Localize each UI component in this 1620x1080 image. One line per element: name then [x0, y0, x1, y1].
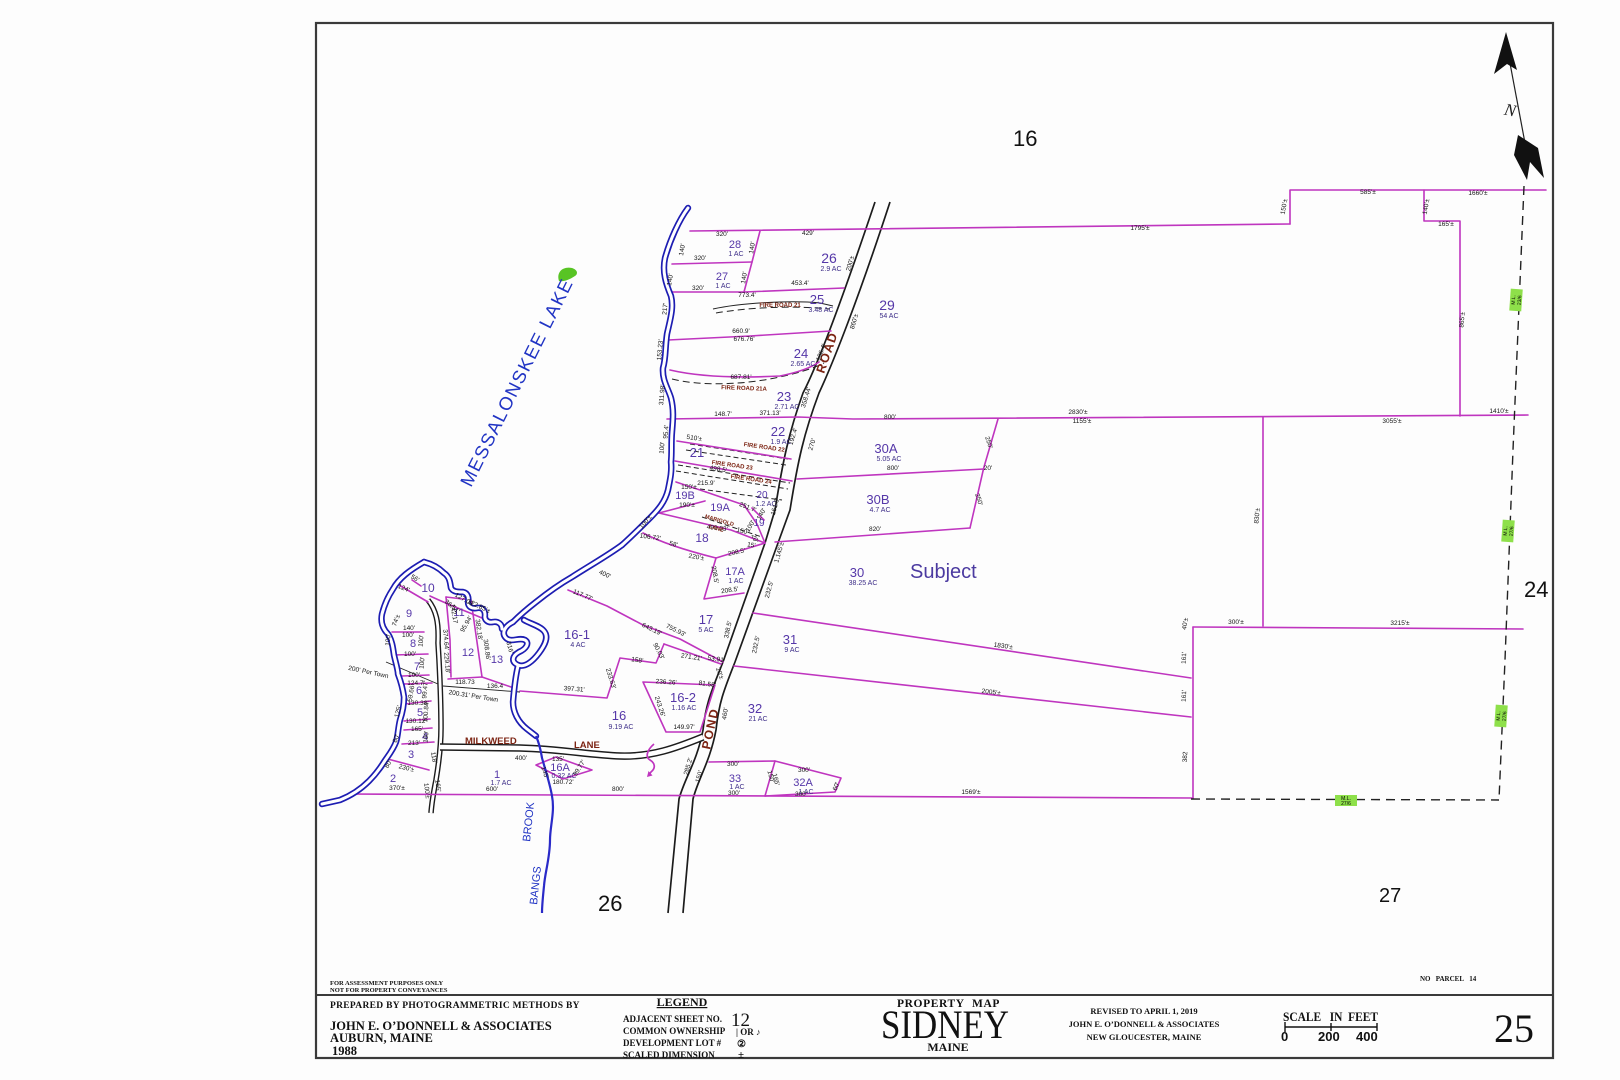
svg-text:320': 320'	[716, 231, 728, 238]
svg-text:23/6: 23/6	[1517, 295, 1524, 305]
svg-text:300': 300'	[727, 761, 739, 768]
svg-text:27/6: 27/6	[1341, 801, 1351, 807]
svg-text:NEW GLOUCESTER, MAINE: NEW GLOUCESTER, MAINE	[1087, 1032, 1202, 1042]
svg-text:MILKWEED: MILKWEED	[465, 736, 517, 747]
svg-text:15': 15'	[746, 541, 756, 549]
svg-text:3: 3	[408, 749, 414, 761]
svg-text:COMMON OWNERSHIP: COMMON OWNERSHIP	[623, 1026, 726, 1036]
svg-text:161': 161'	[1181, 690, 1189, 702]
svg-text:100': 100'	[658, 442, 666, 455]
svg-text:27/6: 27/6	[1509, 526, 1516, 536]
svg-text:ADJACENT SHEET NO.: ADJACENT SHEET NO.	[623, 1014, 722, 1024]
svg-text:9.19 AC: 9.19 AC	[609, 724, 634, 731]
svg-text:16: 16	[612, 708, 626, 723]
svg-text:20': 20'	[984, 465, 992, 472]
svg-text:820': 820'	[869, 526, 881, 533]
svg-text:REVISED TO APRIL 1, 2019: REVISED TO APRIL 1, 2019	[1090, 1006, 1197, 1016]
svg-text:3.48 AC: 3.48 AC	[809, 307, 834, 314]
svg-text:4 AC: 4 AC	[570, 642, 585, 649]
svg-text:150'±: 150'±	[681, 484, 697, 491]
svg-text:118.73: 118.73	[455, 679, 475, 686]
svg-text:1 AC: 1 AC	[728, 251, 743, 258]
svg-text:300'±: 300'±	[1228, 619, 1244, 626]
svg-text:800': 800'	[884, 414, 896, 421]
svg-text:17A: 17A	[725, 566, 745, 578]
svg-text:200: 200	[1318, 1029, 1340, 1044]
svg-text:0: 0	[1281, 1029, 1288, 1044]
svg-text:3055'±: 3055'±	[1382, 418, 1402, 425]
svg-text:16: 16	[1013, 126, 1037, 151]
svg-text:165'±: 165'±	[1438, 221, 1454, 228]
svg-text:SCALED DIMENSION: SCALED DIMENSION	[623, 1050, 715, 1060]
svg-text:773.4': 773.4'	[738, 292, 756, 299]
svg-text:Subject: Subject	[910, 561, 977, 583]
svg-text:100': 100'	[422, 731, 430, 744]
svg-text:31: 31	[783, 632, 797, 647]
svg-text:AUBURN, MAINE: AUBURN, MAINE	[330, 1031, 433, 1045]
svg-text:1988: 1988	[332, 1044, 357, 1058]
svg-text:NO PARCEL 14: NO PARCEL 14	[1420, 975, 1477, 983]
svg-text:217': 217'	[661, 303, 669, 316]
svg-text:300': 300'	[798, 767, 810, 774]
svg-text:1660'±: 1660'±	[1468, 190, 1488, 197]
svg-text:10: 10	[421, 581, 435, 595]
svg-text:SCALE IN FEET: SCALE IN FEET	[1283, 1009, 1378, 1024]
svg-text:429': 429'	[802, 230, 814, 237]
svg-text:27: 27	[1379, 885, 1401, 907]
svg-text:2.65 AC: 2.65 AC	[791, 361, 816, 368]
svg-text:236.26': 236.26'	[655, 678, 677, 686]
svg-text:135': 135'	[552, 756, 564, 763]
svg-text:8: 8	[410, 638, 416, 650]
svg-text:136.4: 136.4	[487, 683, 504, 690]
svg-text:12: 12	[462, 647, 474, 659]
svg-text:17: 17	[699, 612, 713, 627]
svg-text:100': 100'	[402, 632, 414, 639]
svg-text:30A: 30A	[874, 441, 897, 456]
svg-text:687.81': 687.81'	[730, 374, 751, 381]
svg-text:24: 24	[794, 346, 808, 361]
svg-text:5 AC: 5 AC	[698, 627, 713, 634]
svg-text:149.97': 149.97'	[673, 724, 694, 731]
svg-text:26: 26	[598, 891, 622, 916]
svg-text:38.25 AC: 38.25 AC	[849, 580, 878, 587]
svg-text:32A: 32A	[793, 777, 813, 789]
svg-text:213': 213'	[408, 740, 420, 747]
svg-text:2830'±: 2830'±	[1068, 409, 1088, 416]
svg-text:21 AC: 21 AC	[748, 716, 767, 723]
svg-text:165': 165'	[411, 726, 423, 733]
svg-text:MAINE: MAINE	[927, 1040, 968, 1054]
svg-text:148.7': 148.7'	[714, 411, 732, 418]
svg-text:320': 320'	[694, 255, 706, 262]
svg-text:54 AC: 54 AC	[879, 313, 898, 320]
svg-text:165': 165'	[433, 779, 441, 792]
svg-text:660.9': 660.9'	[732, 328, 750, 335]
svg-text:26: 26	[821, 250, 837, 266]
svg-text:19A: 19A	[710, 502, 730, 514]
svg-text:371.13': 371.13'	[759, 410, 780, 417]
svg-text:100': 100'	[404, 651, 416, 658]
svg-text:180.72': 180.72'	[552, 779, 573, 786]
svg-text:830'±: 830'±	[1253, 507, 1261, 524]
svg-text:370'±: 370'±	[389, 785, 405, 792]
svg-text:13: 13	[491, 654, 503, 666]
svg-text:100': 100'	[384, 634, 392, 647]
svg-text:1.16 AC: 1.16 AC	[672, 705, 697, 712]
svg-text:1569'±: 1569'±	[961, 789, 981, 796]
svg-text:24: 24	[1524, 577, 1548, 602]
svg-text:865'±: 865'±	[1458, 311, 1466, 328]
svg-text:FOR ASSESSMENT PURPOSES ONLY: FOR ASSESSMENT PURPOSES ONLY	[330, 980, 444, 987]
svg-text:NOT FOR PROPERTY CONVEYANCES: NOT FOR PROPERTY CONVEYANCES	[330, 987, 448, 994]
svg-text:676.76': 676.76'	[733, 336, 754, 343]
svg-text:9: 9	[406, 608, 412, 620]
svg-text:100': 100'	[417, 635, 425, 648]
svg-text:16-1: 16-1	[564, 627, 590, 642]
svg-text:140': 140'	[403, 625, 415, 632]
svg-text:30: 30	[850, 565, 864, 580]
svg-text:161': 161'	[1181, 652, 1189, 664]
svg-text:FIRE ROAD 21: FIRE ROAD 21	[759, 303, 801, 309]
svg-text:190'±: 190'±	[679, 502, 695, 509]
svg-text:19B: 19B	[675, 490, 695, 502]
svg-text:1 AC: 1 AC	[715, 283, 730, 290]
svg-text:300': 300'	[728, 790, 740, 797]
svg-text:27: 27	[716, 271, 728, 283]
svg-text:25: 25	[810, 292, 824, 307]
svg-text:1 AC: 1 AC	[728, 578, 743, 585]
svg-text:800': 800'	[612, 786, 624, 793]
svg-text:25: 25	[1494, 1006, 1534, 1051]
svg-text:300': 300'	[795, 791, 807, 798]
svg-text:9 AC: 9 AC	[784, 647, 799, 654]
svg-text:585'±: 585'±	[1360, 189, 1376, 196]
svg-text:LEGEND: LEGEND	[657, 995, 708, 1009]
svg-text:22: 22	[771, 424, 785, 439]
svg-text:1155'±: 1155'±	[1073, 418, 1092, 425]
svg-text:95.4': 95.4'	[662, 425, 670, 439]
svg-text:JOHN E. O’DONNELL & ASSOCI: JOHN E. O’DONNELL & ASSOCIATES	[1069, 1019, 1220, 1029]
svg-text:2.9 AC: 2.9 AC	[820, 266, 841, 273]
svg-text:453.4': 453.4'	[791, 280, 809, 287]
svg-text:PREPARED BY PHOTOGRAMMETRIC: PREPARED BY PHOTOGRAMMETRIC METHODS BY	[330, 1001, 580, 1011]
svg-text:29: 29	[879, 297, 895, 313]
svg-text:100': 100'	[408, 672, 420, 679]
svg-text:2: 2	[390, 773, 396, 785]
svg-text:320': 320'	[692, 285, 704, 292]
svg-text:32: 32	[748, 701, 762, 716]
svg-text:18: 18	[695, 531, 709, 545]
svg-text:30B: 30B	[866, 492, 889, 507]
svg-text:397.31': 397.31'	[563, 685, 585, 693]
svg-text:21: 21	[690, 445, 704, 460]
svg-text:400: 400	[1356, 1029, 1378, 1044]
svg-text:20: 20	[756, 490, 768, 501]
svg-text:800': 800'	[887, 465, 899, 472]
svg-text:23: 23	[777, 389, 791, 404]
svg-text:| OR ♪: | OR ♪	[736, 1027, 760, 1037]
svg-text:100': 100'	[418, 657, 426, 670]
svg-text:LANE: LANE	[574, 740, 600, 751]
svg-text:215.9': 215.9'	[697, 480, 715, 487]
svg-text:600': 600'	[486, 786, 498, 793]
svg-text:1410'±: 1410'±	[1489, 408, 1509, 415]
svg-text:400': 400'	[515, 755, 527, 762]
svg-text:DEVELOPMENT LOT #: DEVELOPMENT LOT #	[623, 1038, 722, 1048]
svg-text:16-2: 16-2	[670, 690, 696, 705]
svg-text:28: 28	[729, 239, 741, 251]
svg-text:382: 382	[1182, 751, 1190, 763]
svg-text:5.05 AC: 5.05 AC	[877, 456, 902, 463]
svg-text:1795'±: 1795'±	[1130, 225, 1150, 232]
svg-text:3215'±: 3215'±	[1390, 620, 1410, 627]
svg-text:27/6: 27/6	[1502, 711, 1509, 721]
svg-text:±: ±	[738, 1049, 744, 1061]
svg-text:4.7 AC: 4.7 AC	[869, 507, 890, 514]
